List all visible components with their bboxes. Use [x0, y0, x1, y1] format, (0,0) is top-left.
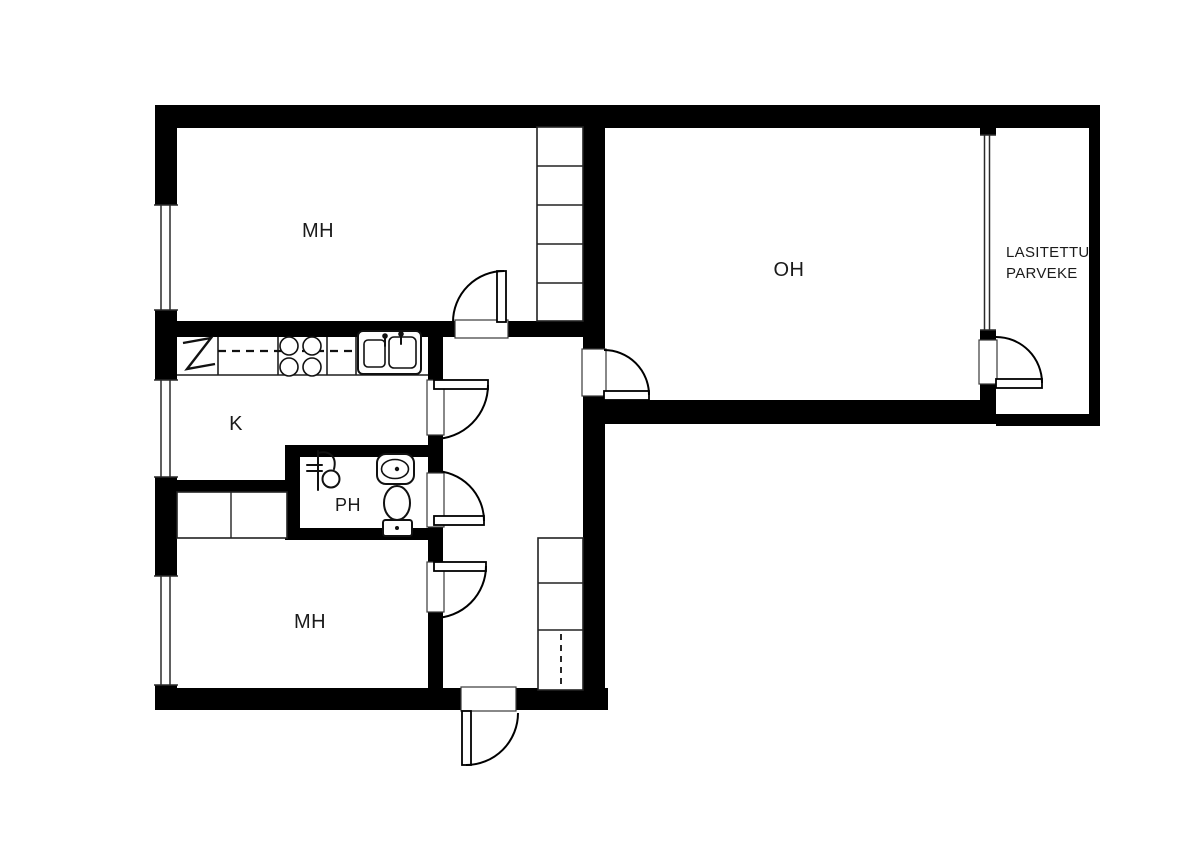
wall-bathroom-top [285, 445, 443, 457]
balcony-glass-wall [980, 135, 996, 330]
basin-drain [395, 467, 399, 471]
window-glass [154, 205, 178, 310]
sink-basin-right [389, 337, 416, 368]
door-leaf [497, 271, 506, 322]
wardrobe-bedroom-bottom [177, 492, 287, 538]
door-leaf [434, 562, 486, 571]
door-leaf [434, 380, 488, 389]
window-glass [154, 576, 178, 685]
washbasin-icon [377, 454, 414, 484]
window-glass [980, 135, 996, 330]
toilet-flush-dot [395, 526, 399, 530]
wall-hallway-west-d [428, 612, 443, 688]
threshold-living-room-door [582, 349, 606, 396]
window-glass [154, 380, 178, 477]
door-leaf [434, 516, 484, 525]
shower-head [323, 471, 340, 488]
living-room-label: OH [774, 259, 805, 281]
wall-top [155, 105, 1100, 128]
balcony-label-line2: PARVEKE [1006, 265, 1078, 282]
sink-basin-left [364, 340, 385, 367]
sink-icon [358, 331, 421, 374]
wall-living-room-bottom [583, 400, 996, 424]
wardrobe-bedroom-top [537, 127, 583, 321]
hallway-closet [538, 538, 583, 690]
sink-tap-dot [382, 333, 388, 339]
door-leaf [604, 391, 649, 400]
window-bedroom-top [154, 205, 178, 310]
bedroom-top-label: MH [302, 220, 334, 242]
wall-living-room-west [583, 127, 605, 349]
burner [280, 358, 298, 376]
door-leaf [996, 379, 1042, 388]
threshold-entrance-door [461, 687, 516, 711]
toilet-icon [383, 486, 412, 536]
kitchen-label: K [229, 413, 243, 435]
wall-kitchen-bottom [177, 480, 300, 492]
door-leaf [462, 711, 471, 765]
wall-balcony-jamb-bottom [980, 384, 996, 424]
toilet-bowl [384, 486, 410, 520]
wall-balcony-bottom [996, 414, 1100, 426]
wall-bathroom-bottom [285, 528, 443, 540]
wardrobe-body [177, 492, 287, 538]
wall-balcony-jamb-mid [980, 330, 996, 340]
wall-balcony-jamb-top [980, 127, 996, 135]
wall-hallway-east [583, 396, 605, 688]
wall-right-balcony [1089, 105, 1100, 426]
window-kitchen [154, 380, 178, 477]
sink-tap-dot [398, 331, 404, 337]
wall-hallway-west-a [428, 337, 443, 380]
floor-plan: MH OH LASITETTU PARVEKE K PH MH [0, 0, 1198, 846]
burner [303, 337, 321, 355]
balcony-label-line1: LASITETTU [1006, 244, 1090, 261]
wall-bottom-left-section [155, 688, 608, 710]
floor-plan-page: MH OH LASITETTU PARVEKE K PH MH [0, 0, 1198, 846]
wardrobe-body [537, 127, 583, 321]
window-bedroom-bottom [154, 576, 178, 685]
bedroom-bottom-label: MH [294, 611, 326, 633]
bathroom-label: PH [335, 495, 361, 515]
burner [280, 337, 298, 355]
burner [303, 358, 321, 376]
threshold-balcony-door [979, 340, 997, 384]
